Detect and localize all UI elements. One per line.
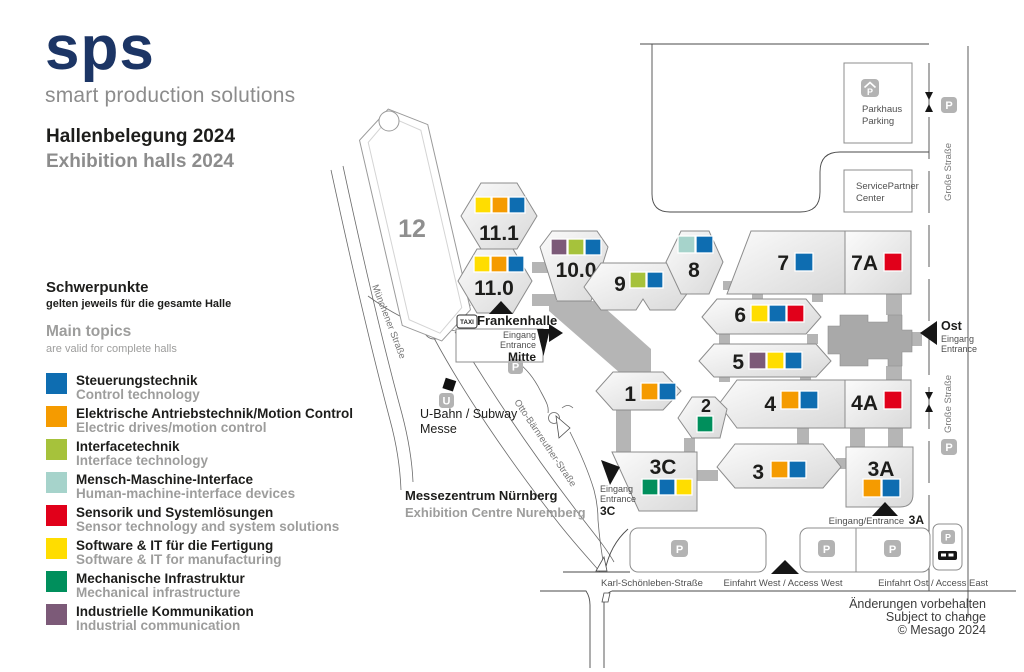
topic-square-mech xyxy=(697,416,713,432)
hall-label: 8 xyxy=(688,259,700,282)
svg-text:P: P xyxy=(945,100,952,112)
topic-square-software xyxy=(767,352,784,369)
hall-5: 5 xyxy=(699,344,831,377)
ost-label: Ost xyxy=(941,319,963,333)
topic-square-drives xyxy=(491,256,507,272)
topic-square-software xyxy=(676,479,692,495)
hall-4a: 4A xyxy=(845,380,911,428)
one-way-arrow-up-icon xyxy=(925,104,933,112)
hall-label: 1 xyxy=(624,383,636,406)
topic-square-software xyxy=(475,197,491,213)
crossing-mark xyxy=(602,593,610,602)
eingang-3c-label-1: Eingang xyxy=(600,484,633,494)
hall-6: 6 xyxy=(702,299,821,334)
hall-label: 3C xyxy=(650,456,677,479)
topic-square-comm xyxy=(749,352,766,369)
topic-square-control xyxy=(769,305,786,322)
parking-garage-icon: P xyxy=(861,79,879,97)
svg-text:P: P xyxy=(945,533,951,543)
ost-entrance-arrow-icon xyxy=(920,321,937,345)
grosse-strasse-label: Große Straße xyxy=(943,375,954,433)
hall-11-1: 11.1 xyxy=(461,183,537,249)
access-west-arrow-icon xyxy=(771,560,799,574)
topic-square-hmi xyxy=(678,236,695,253)
hall-4: 4 xyxy=(719,380,845,428)
servicepartner-label-1: ServicePartner xyxy=(856,181,919,192)
ost-eingang-label: Eingang xyxy=(941,334,974,344)
parkhaus-building xyxy=(844,63,912,143)
access-west-label: Einfahrt West / Access West xyxy=(724,578,843,589)
topic-square-software xyxy=(751,305,768,322)
access-east-label: Einfahrt Ost / Access East xyxy=(878,578,988,589)
topic-square-control xyxy=(585,239,601,255)
topic-square-drives xyxy=(492,197,508,213)
svg-text:P: P xyxy=(823,544,830,556)
svg-text:TAXI: TAXI xyxy=(460,319,474,326)
mitte-eingang-label: Eingang xyxy=(503,330,536,340)
topic-square-control xyxy=(785,352,802,369)
ost-entrance-label: Entrance xyxy=(941,344,977,354)
footer-line-2: Subject to change xyxy=(886,610,986,624)
hall-1: 1 xyxy=(596,372,681,410)
hall-label: 4 xyxy=(764,393,776,416)
topic-square-control xyxy=(800,391,818,409)
svg-text:P: P xyxy=(889,544,896,556)
mitte-label: Mitte xyxy=(508,350,536,364)
messezentrum-label-en: Exhibition Centre Nuremberg xyxy=(405,505,586,520)
hall-3a: 3A xyxy=(846,447,913,507)
parking-icon: P xyxy=(671,540,688,557)
topic-square-control xyxy=(789,461,806,478)
parking-icon: P xyxy=(941,530,955,544)
parking-icon: P xyxy=(818,540,835,557)
topic-square-control xyxy=(647,272,663,288)
one-way-arrow-down-icon xyxy=(925,92,933,100)
topic-square-drives xyxy=(781,391,799,409)
topic-square-control xyxy=(795,253,813,271)
topic-square-interface xyxy=(568,239,584,255)
subway-icon: U xyxy=(439,393,454,408)
topic-square-software xyxy=(474,256,490,272)
hall-label: 2 xyxy=(701,396,711,416)
footer-line-3: © Mesago 2024 xyxy=(898,623,986,637)
topic-square-sensor xyxy=(884,253,902,271)
mitte-entrance-label: Entrance xyxy=(500,340,536,350)
svg-text:P: P xyxy=(676,544,683,556)
topic-square-control xyxy=(508,256,524,272)
roads xyxy=(331,44,1016,668)
karl-strasse-label: Karl-Schönleben-Straße xyxy=(601,578,703,589)
frankenhalle-label: Frankenhalle xyxy=(477,313,557,328)
hall-label: 11.0 xyxy=(474,277,514,300)
parkhaus-label-de: Parkhaus xyxy=(862,104,902,115)
parkhaus-label-en: Parking xyxy=(862,116,894,127)
topic-square-control xyxy=(659,383,676,400)
hall-label: 11.1 xyxy=(479,222,519,245)
svg-text:P: P xyxy=(867,87,873,97)
topic-square-control xyxy=(659,479,675,495)
topic-square-control xyxy=(509,197,525,213)
hall-label: 5 xyxy=(732,351,744,374)
parking-icon: P xyxy=(884,540,901,557)
grosse-strasse-label: Große Straße xyxy=(943,143,954,201)
hall-label: 4A xyxy=(851,392,878,415)
hall-7: 7 xyxy=(727,231,845,294)
hall-12: 12 xyxy=(354,101,476,349)
ubahn-label-2: Messe xyxy=(420,422,457,436)
hall-label: 9 xyxy=(614,273,626,296)
topic-square-comm xyxy=(551,239,567,255)
topic-square-sensor xyxy=(884,391,902,409)
topic-square-control xyxy=(696,236,713,253)
hall-label: 7A xyxy=(851,252,878,275)
traffic-island xyxy=(556,416,570,438)
svg-text:P: P xyxy=(945,442,952,454)
one-way-arrow-up-icon xyxy=(925,404,933,412)
topic-square-sensor xyxy=(787,305,804,322)
hall-12-label: 12 xyxy=(398,215,426,243)
hall-2: 2 xyxy=(678,396,727,438)
ost-entrance-building xyxy=(828,315,912,366)
topic-square-drives xyxy=(641,383,658,400)
taxi-icon: TAXI xyxy=(457,315,477,328)
hall-label: 6 xyxy=(734,304,746,327)
hall-7a: 7A xyxy=(845,231,911,294)
footer-line-1: Änderungen vorbehalten xyxy=(849,597,986,611)
servicepartner-label-2: Center xyxy=(856,193,885,204)
topic-square-drives xyxy=(771,461,788,478)
subway-station-marker xyxy=(442,378,456,392)
topic-square-mech xyxy=(642,479,658,495)
hall-label: 3A xyxy=(868,458,895,481)
topic-square-drives xyxy=(863,479,881,497)
hall-label: 3 xyxy=(752,461,764,484)
hall-label: 7 xyxy=(777,252,789,275)
parking-icon: P xyxy=(941,439,957,455)
parking-icon: P xyxy=(941,97,957,113)
topic-square-interface xyxy=(630,272,646,288)
messezentrum-label-de: Messezentrum Nürnberg xyxy=(405,488,557,503)
ubahn-label-1: U-Bahn / Subway xyxy=(420,407,518,421)
one-way-arrow-down-icon xyxy=(925,392,933,400)
hall-3: 3 xyxy=(717,444,841,488)
eingang-3c-label-2: Entrance xyxy=(600,494,636,504)
page: sps smart production solutions Hallenbel… xyxy=(0,0,1024,672)
otto-strasse-label: Otto-Bärnreuther-Straße xyxy=(512,398,579,490)
topic-square-control xyxy=(882,479,900,497)
site-map: 12 11.1 11.0 10.0 xyxy=(0,0,1024,672)
bus-icon xyxy=(938,551,957,560)
eingang-3c-label-3: 3C xyxy=(600,504,616,518)
traffic-island xyxy=(596,557,607,571)
svg-text:U: U xyxy=(443,396,451,408)
